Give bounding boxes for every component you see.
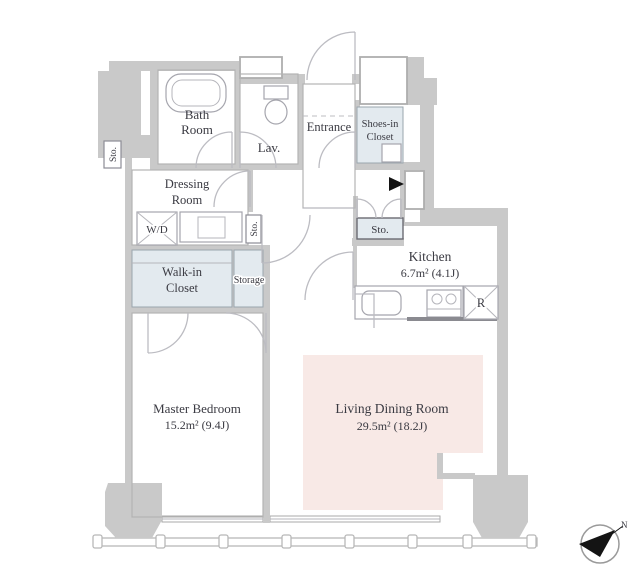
lav-label: Lav. (258, 140, 281, 155)
living-dining-label: Living Dining Room (335, 401, 449, 416)
wall-segment (437, 473, 475, 479)
kitchen-door-swing (305, 252, 353, 300)
wall-segment (420, 208, 508, 224)
bath-label-line2: Room (181, 122, 213, 137)
balcony-post (345, 535, 354, 548)
kitchen-label: Kitchen (409, 249, 452, 264)
sto-hall-label: Sto. (371, 224, 389, 236)
wall-segment (235, 70, 240, 170)
entrance-hall-door-swing (319, 132, 355, 168)
balcony-post (156, 535, 165, 548)
walk-in-closet-label-line2: Closet (166, 281, 198, 295)
wall-segment (125, 307, 270, 313)
master-bedroom-area-label: 15.2m² (9.4J) (165, 418, 230, 432)
living-dining-area-label: 29.5m² (18.2J) (357, 419, 428, 433)
meter-box (240, 57, 282, 78)
master-bedroom-label: Master Bedroom (153, 401, 241, 416)
walkin-closet-door-swing (148, 313, 188, 353)
bedroom-door-swing (226, 313, 266, 353)
wall-segment (150, 70, 158, 170)
walk-in-closet-label-line1: Walk-in (162, 265, 203, 279)
floorplan-svg: N Bath Room Lav. Entrance Shoes-in Close… (0, 0, 640, 569)
wall-segment (424, 172, 434, 212)
balcony-post (527, 535, 536, 548)
floorplan: N Bath Room Lav. Entrance Shoes-in Close… (0, 0, 640, 569)
toilet-tank (264, 86, 288, 99)
compass-north-label: N (621, 520, 628, 530)
shoes-closet-label-line1: Shoes-in (362, 119, 400, 130)
shoes-closet-inner-box (382, 144, 401, 162)
balcony-post (408, 535, 417, 548)
balcony-post (282, 535, 291, 548)
wall-segment (403, 222, 497, 226)
bath-label-line1: Bath (185, 107, 210, 122)
bath-door-swing (196, 132, 232, 168)
wall-segment (420, 100, 434, 172)
refrigerator-label: R (477, 296, 486, 310)
balcony-rail (93, 535, 537, 548)
balcony-post (93, 535, 102, 548)
dressing-label-line1: Dressing (165, 177, 210, 191)
entry-door-swing (307, 32, 355, 80)
stove (427, 290, 461, 317)
wall-segment (497, 224, 508, 479)
shoes-closet-label-line2: Closet (367, 132, 394, 143)
dressing-door-swing (214, 171, 250, 207)
washer-dryer-label: W/D (146, 224, 167, 236)
toilet-bowl (265, 100, 287, 124)
balcony-post (219, 535, 228, 548)
storage-label: Storage (234, 275, 265, 286)
meter-box (360, 57, 407, 104)
wall-segment (150, 164, 302, 170)
pipe-space-box (405, 171, 424, 209)
hall-storage-doors (357, 199, 401, 218)
wall-segment (352, 74, 360, 84)
balcony-post (463, 535, 472, 548)
sto-mid-label: Sto. (250, 221, 260, 236)
sto-left-label: Sto. (109, 147, 119, 162)
wall-pillar-sw (105, 483, 162, 538)
wall-segment (298, 74, 303, 170)
wall-segment (125, 158, 132, 483)
dressing-label-line2: Room (172, 193, 203, 207)
entrance-label: Entrance (307, 120, 352, 134)
entrance-outline (303, 84, 355, 208)
wall-pillar-se (473, 475, 528, 538)
wall-segment (125, 245, 267, 250)
kitchen-area-label: 6.7m² (4.1J) (401, 266, 460, 280)
